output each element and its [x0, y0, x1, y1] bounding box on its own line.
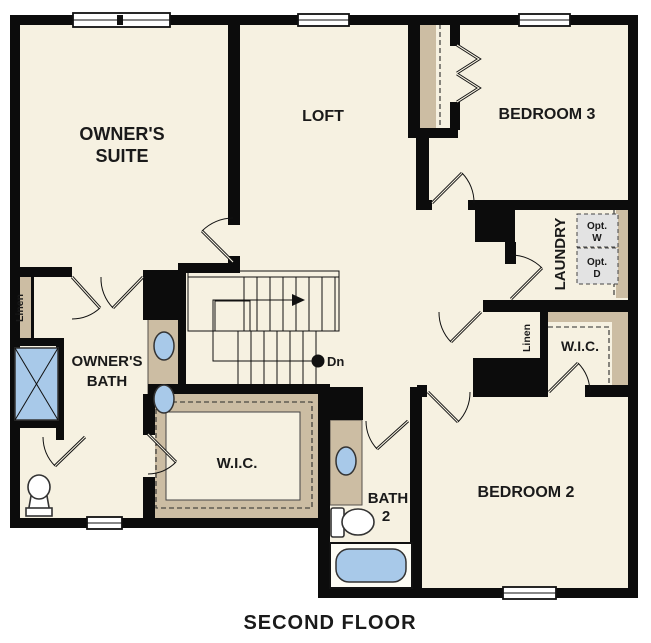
bedroom3-closet-left-wall [408, 20, 420, 138]
bedroom2-window [503, 587, 556, 599]
shower-bottom-wall [10, 420, 64, 428]
linen-left-side-wall [31, 277, 34, 338]
owner-bath-label-line2: BATH [87, 373, 128, 390]
bedroom2-top-wall-stub [417, 385, 427, 397]
owner-suite-bottom-wall [10, 267, 72, 277]
owner-suite-right-wall [228, 15, 240, 225]
optional-dryer-label-line2: D [593, 269, 600, 280]
bedroom3-closet-shelf [420, 22, 436, 128]
optional-dryer-label-line1: Opt. [587, 257, 607, 268]
owner-wic-left-wall-upper [143, 394, 155, 435]
owner-wic-left-wall-lower [143, 477, 155, 518]
linen-right-label: Linen [521, 324, 533, 352]
floor-plan: OWNER'S SUITE LOFT BEDROOM 3 LAUNDRY Opt… [0, 0, 651, 643]
loft-label: LOFT [302, 108, 344, 125]
hall-block-linen [473, 358, 548, 397]
bedroom2-wic-shelf-right [612, 312, 628, 385]
bedroom3-left-wall [416, 136, 429, 210]
exterior-wall-bottom-right [318, 588, 638, 598]
bedroom2-label: BEDROOM 2 [478, 484, 575, 501]
owner-suite-label-line2: SUITE [95, 146, 148, 166]
owner-bath-sink-1 [154, 332, 174, 360]
optional-washer-label-line1: Opt. [587, 221, 607, 232]
toilet-room-jamb [56, 428, 64, 440]
wall-block-bath-hall [143, 270, 183, 320]
owner-suite-label-line1: OWNER'S [79, 124, 164, 144]
bedroom3-bottom-wall-right [468, 200, 628, 210]
bath2-label-line2: 2 [382, 508, 390, 525]
hall-window [87, 517, 122, 529]
stair-down-dot [312, 355, 325, 368]
exterior-wall-bottom-left [10, 518, 330, 528]
bedroom3-window [519, 14, 570, 26]
owner-wic-top-wall [148, 384, 330, 394]
linen-left-bottom-wall [10, 338, 62, 346]
loft-window [298, 14, 349, 26]
bedroom3-label: BEDROOM 3 [499, 106, 596, 123]
bedroom3-closet-jamb-top [450, 20, 460, 46]
bath2-left-wall [318, 394, 330, 598]
bedroom2-wic-label: W.I.C. [561, 338, 599, 354]
bath2-sink [336, 447, 356, 475]
owner-bath-sink-2 [154, 385, 174, 413]
shower [15, 348, 58, 420]
stair-down-label: Dn [327, 354, 344, 369]
bath2-toilet [331, 508, 374, 537]
vestibule-wall [483, 300, 628, 312]
owner-bath-label-line1: OWNER'S [71, 353, 142, 370]
owner-suite-window [73, 13, 170, 27]
bedroom3-closet-jamb-bottom [450, 102, 460, 130]
bedroom2-top-wall-right [585, 385, 628, 397]
bath2-corner-block [328, 387, 363, 420]
linen-left-label: Linen [14, 294, 26, 322]
optional-washer-label-line2: W [592, 233, 602, 244]
bathtub [330, 543, 412, 588]
linen-right-wall [540, 312, 548, 360]
stairwell-top-wall [178, 263, 240, 273]
stairwell-left-wall [178, 273, 186, 388]
bath2-label-line1: BATH [368, 490, 409, 507]
exterior-wall-right [628, 15, 638, 598]
plan-title: SECOND FLOOR [243, 612, 416, 634]
laundry-label: LAUNDRY [552, 218, 569, 291]
laundry-left-wall-stub [505, 242, 516, 264]
owner-wic-label: W.I.C. [217, 455, 258, 472]
bedroom2-wic-shelf-top [548, 312, 616, 322]
